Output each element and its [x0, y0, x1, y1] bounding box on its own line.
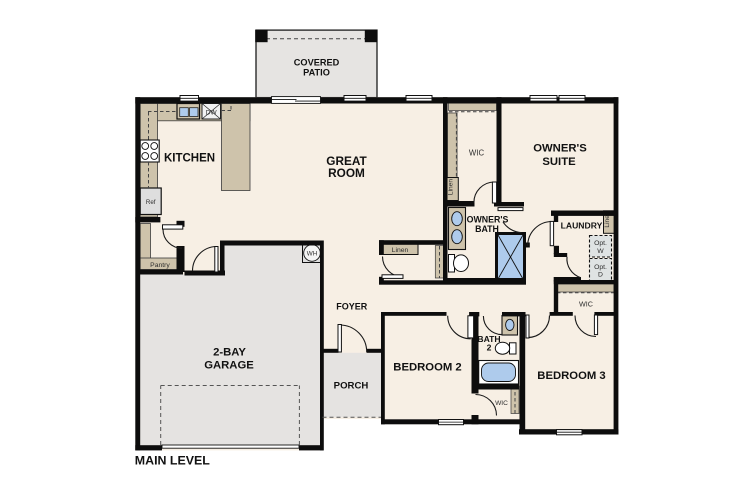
svg-text:WIC: WIC [469, 149, 485, 158]
svg-text:FOYER: FOYER [336, 302, 368, 312]
svg-text:SUITE: SUITE [542, 156, 576, 168]
svg-text:WIC: WIC [579, 300, 593, 309]
svg-text:Opt.: Opt. [594, 240, 607, 247]
svg-text:2: 2 [487, 343, 492, 353]
svg-text:D: D [598, 271, 603, 278]
svg-text:Linen: Linen [392, 247, 409, 254]
svg-text:WIC: WIC [495, 400, 508, 407]
svg-text:BEDROOM 3: BEDROOM 3 [537, 370, 605, 382]
svg-text:OWNER'S: OWNER'S [533, 143, 587, 155]
svg-text:2-BAY: 2-BAY [213, 347, 246, 359]
svg-text:PATIO: PATIO [303, 68, 330, 78]
svg-text:MAIN LEVEL: MAIN LEVEL [135, 453, 210, 467]
svg-text:DW: DW [206, 110, 218, 117]
svg-text:Linen: Linen [448, 179, 455, 195]
svg-text:OWNER'S: OWNER'S [467, 214, 509, 224]
svg-text:COVERED: COVERED [294, 58, 340, 68]
svg-text:LAUNDRY: LAUNDRY [561, 221, 603, 231]
svg-text:GARAGE: GARAGE [204, 360, 254, 372]
svg-text:Opt.: Opt. [594, 264, 607, 271]
svg-text:WH: WH [307, 251, 318, 258]
svg-text:BATH: BATH [475, 224, 499, 234]
svg-text:BEDROOM 2: BEDROOM 2 [393, 362, 461, 374]
svg-text:Ref: Ref [146, 199, 156, 206]
svg-text:ROOM: ROOM [328, 166, 365, 180]
svg-text:Pantry: Pantry [150, 262, 170, 269]
svg-text:PORCH: PORCH [334, 381, 369, 392]
svg-text:W: W [597, 248, 604, 255]
svg-text:KITCHEN: KITCHEN [164, 153, 215, 165]
